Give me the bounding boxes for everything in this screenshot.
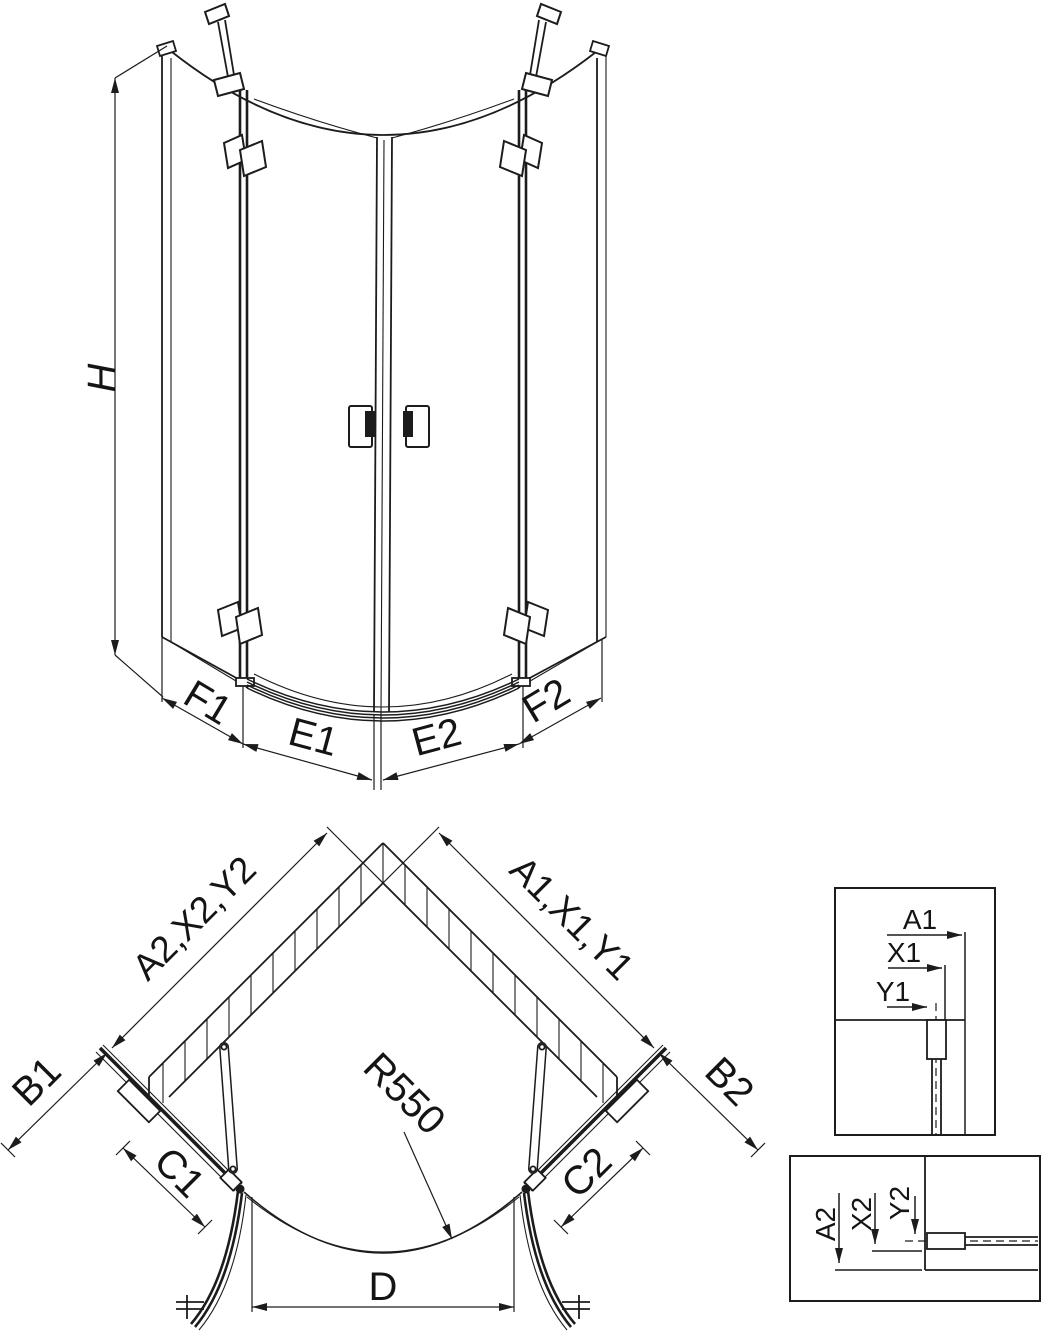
wall-bracket-left [205, 4, 244, 96]
right-door-handle [403, 406, 429, 447]
tray-band [247, 674, 519, 721]
detail-label-y2: Y2 [884, 1186, 915, 1220]
dim-label-e1: E1 [284, 710, 343, 765]
dim-label-left-wall: A2,X2,Y2 [124, 848, 264, 988]
detail-label-x2: X2 [846, 1197, 877, 1231]
detail-label-y1: Y1 [876, 976, 910, 1007]
detail-label-a1: A1 [903, 904, 937, 935]
wall-profile-section-2 [927, 1233, 965, 1249]
technical-drawing-page: H F1 E1 E2 F2 [0, 0, 1048, 1341]
elevation-view: H F1 E1 E2 F2 [80, 4, 609, 790]
detail-label-a2: A2 [810, 1207, 841, 1241]
back-right-panel [525, 41, 609, 684]
hinge-top-left [224, 135, 266, 176]
open-door-right [520, 1191, 590, 1330]
dim-label-e2: E2 [407, 710, 466, 765]
dim-label-f1: F1 [176, 672, 239, 734]
back-left-panel [157, 41, 241, 684]
right-hinge-stile [512, 88, 530, 688]
dimension-height: H [80, 46, 167, 697]
detail-view-bottom: A2 X2 Y2 [790, 1156, 1040, 1301]
support-brace-left [221, 1044, 235, 1171]
tray-curve [244, 1192, 522, 1253]
dim-label-b1: B1 [4, 1049, 70, 1115]
hinge-top-right [500, 135, 542, 176]
elevation-bottom-dimensions: F1 E1 E2 F2 [162, 637, 602, 790]
left-door-handle [349, 406, 375, 447]
radius-label: R550 [355, 1044, 454, 1143]
detail-label-x1: X1 [887, 937, 921, 968]
dim-label-d: D [369, 1265, 398, 1309]
wall-bracket-right [522, 4, 561, 96]
dim-label-b2: B2 [696, 1049, 762, 1115]
center-stiles [374, 137, 392, 714]
dim-label-height: H [80, 363, 124, 392]
plan-dimensions: A2,X2,Y2 A1,X1,Y1 B1 B2 C1 C2 D R550 [1, 833, 765, 1312]
wall-profile-section [927, 1020, 946, 1059]
open-door-left [176, 1191, 246, 1330]
left-hinge-stile [236, 88, 254, 688]
detail-view-top: A1 X1 Y1 [835, 888, 995, 1135]
dim-label-right-wall: A1,X1,Y1 [502, 848, 642, 988]
plan-view: A2,X2,Y2 A1,X1,Y1 B1 B2 C1 C2 D R550 [1, 827, 765, 1330]
shower-enclosure-drawing: H F1 E1 E2 F2 [0, 0, 1048, 1341]
support-brace-right [530, 1044, 544, 1171]
